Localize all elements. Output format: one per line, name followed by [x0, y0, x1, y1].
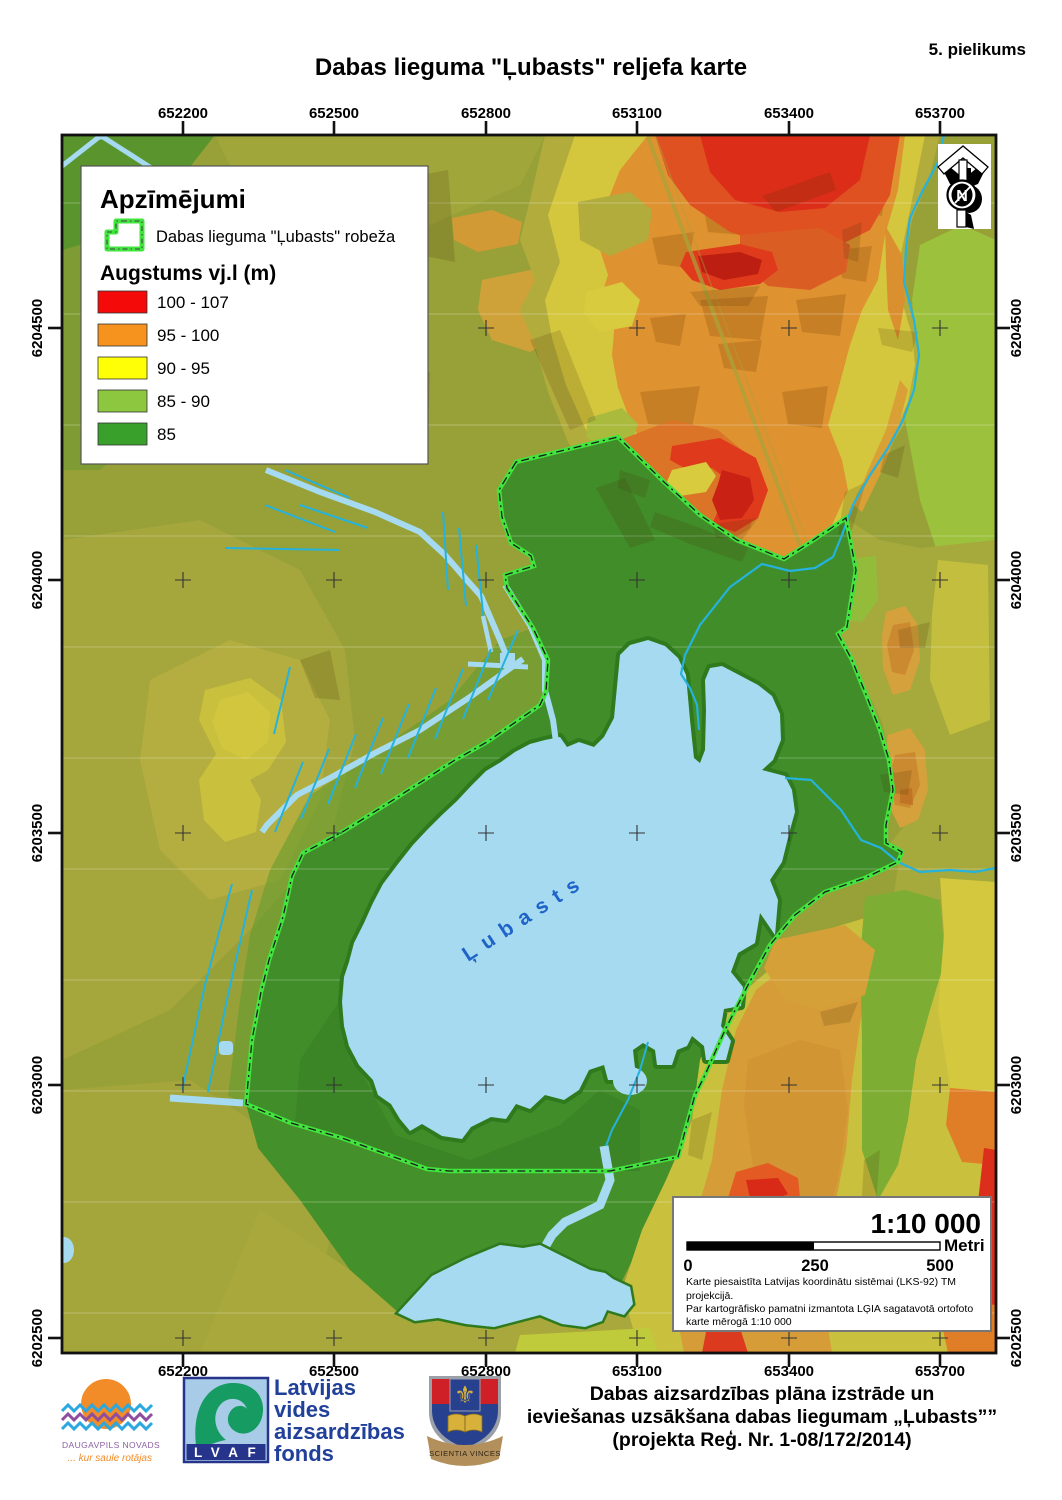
svg-text:85: 85 — [157, 425, 176, 444]
svg-text:Dabas aizsardzības plāna izstr: Dabas aizsardzības plāna izstrāde un — [590, 1383, 935, 1405]
svg-text:652500: 652500 — [309, 105, 359, 122]
svg-text:6204000: 6204000 — [29, 551, 46, 609]
svg-text:90 - 95: 90 - 95 — [157, 359, 210, 378]
svg-text:6202500: 6202500 — [29, 1309, 46, 1367]
svg-text:250: 250 — [801, 1257, 829, 1275]
svg-text:5. pielikums: 5. pielikums — [929, 40, 1026, 59]
svg-text:LVAF: LVAF — [194, 1445, 265, 1460]
svg-text:Par kartogrāfisko pamatni izma: Par kartogrāfisko pamatni izmantota LĢIA… — [686, 1303, 973, 1315]
svg-text:Apzīmējumi: Apzīmējumi — [100, 184, 246, 214]
svg-text:653400: 653400 — [764, 105, 814, 122]
svg-text:⚜: ⚜ — [454, 1382, 476, 1409]
svg-text:fonds: fonds — [274, 1441, 334, 1466]
svg-text:1:10 000: 1:10 000 — [870, 1208, 981, 1239]
svg-text:6203500: 6203500 — [1008, 804, 1025, 862]
svg-text:653100: 653100 — [612, 1363, 662, 1380]
svg-text:6203000: 6203000 — [29, 1056, 46, 1114]
svg-text:Dabas lieguma "Ļubasts" reljef: Dabas lieguma "Ļubasts" reljefa karte — [315, 54, 747, 81]
svg-text:653700: 653700 — [915, 105, 965, 122]
svg-text:500: 500 — [926, 1257, 954, 1275]
svg-text:6202500: 6202500 — [1008, 1309, 1025, 1367]
svg-text:Augstums vj.l (m): Augstums vj.l (m) — [100, 262, 276, 285]
svg-text:653100: 653100 — [612, 105, 662, 122]
svg-text:100 - 107: 100 - 107 — [157, 293, 229, 312]
svg-text:ieviešanas uzsākšana dabas lie: ieviešanas uzsākšana dabas liegumam „Ļub… — [527, 1406, 997, 1428]
svg-text:0: 0 — [683, 1257, 692, 1275]
svg-text:652800: 652800 — [461, 105, 511, 122]
svg-text:projekcijā.: projekcijā. — [686, 1290, 733, 1302]
svg-text:6203000: 6203000 — [1008, 1056, 1025, 1114]
svg-text:Metri: Metri — [944, 1236, 985, 1255]
svg-text:6204500: 6204500 — [1008, 299, 1025, 357]
svg-text:653700: 653700 — [915, 1363, 965, 1380]
svg-text:SCIENTIA VINCES: SCIENTIA VINCES — [429, 1449, 501, 1458]
svg-text:6204500: 6204500 — [29, 299, 46, 357]
svg-text:95 - 100: 95 - 100 — [157, 326, 219, 345]
svg-text:Karte piesaistīta Latvijas koo: Karte piesaistīta Latvijas koordinātu si… — [686, 1276, 956, 1288]
svg-text:6204000: 6204000 — [1008, 551, 1025, 609]
svg-text:Dabas lieguma "Ļubasts" robeža: Dabas lieguma "Ļubasts" robeža — [156, 228, 396, 246]
svg-text:6203500: 6203500 — [29, 804, 46, 862]
svg-text:653400: 653400 — [764, 1363, 814, 1380]
svg-text:DAUGAVPILS NOVADS: DAUGAVPILS NOVADS — [62, 1440, 160, 1450]
svg-text:(projekta Reģ. Nr. 1-08/172/20: (projekta Reģ. Nr. 1-08/172/2014) — [612, 1429, 911, 1451]
svg-text:karte mērogā 1:10 000: karte mērogā 1:10 000 — [686, 1316, 792, 1328]
svg-text:... kur saule rotājas: ... kur saule rotājas — [68, 1453, 152, 1464]
svg-text:85 - 90: 85 - 90 — [157, 392, 210, 411]
svg-text:652200: 652200 — [158, 105, 208, 122]
